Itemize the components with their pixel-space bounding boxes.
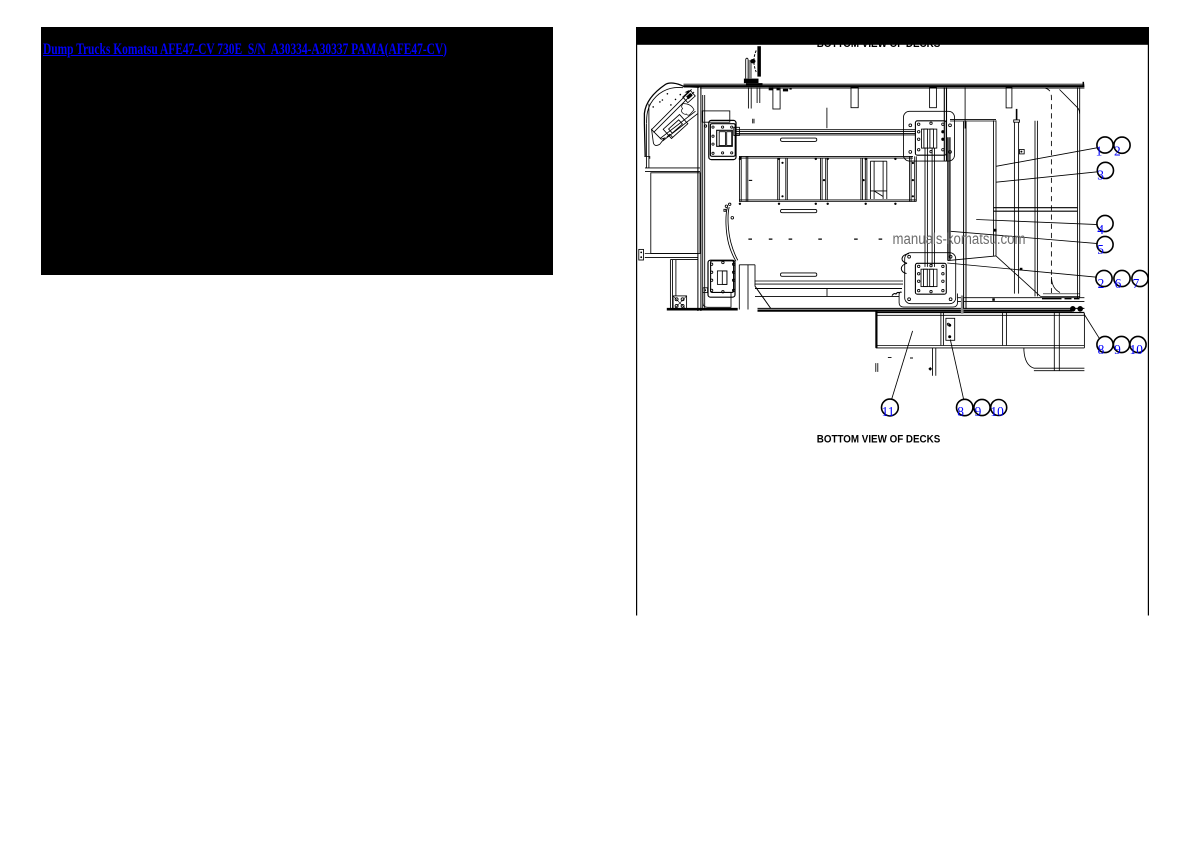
svg-text:8: 8 <box>957 404 964 419</box>
svg-text:8: 8 <box>1098 342 1105 357</box>
svg-text:3: 3 <box>1097 168 1104 183</box>
svg-text:9: 9 <box>1114 342 1121 357</box>
svg-text:2: 2 <box>1114 144 1121 159</box>
svg-text:4: 4 <box>1097 222 1104 237</box>
svg-text:5: 5 <box>1097 242 1104 257</box>
svg-text:6: 6 <box>1115 276 1122 291</box>
svg-text:manuals-komatsu.com: manuals-komatsu.com <box>893 231 1026 248</box>
svg-text:BOTTOM VIEW OF DECKS: BOTTOM VIEW OF DECKS <box>817 434 941 446</box>
svg-text:11: 11 <box>882 404 895 419</box>
svg-text:10: 10 <box>990 404 1004 419</box>
svg-text:9: 9 <box>975 404 982 419</box>
svg-text:2: 2 <box>1098 276 1105 291</box>
svg-text:1: 1 <box>1096 144 1103 159</box>
svg-text:7: 7 <box>1133 276 1140 291</box>
svg-text:10: 10 <box>1130 342 1144 357</box>
